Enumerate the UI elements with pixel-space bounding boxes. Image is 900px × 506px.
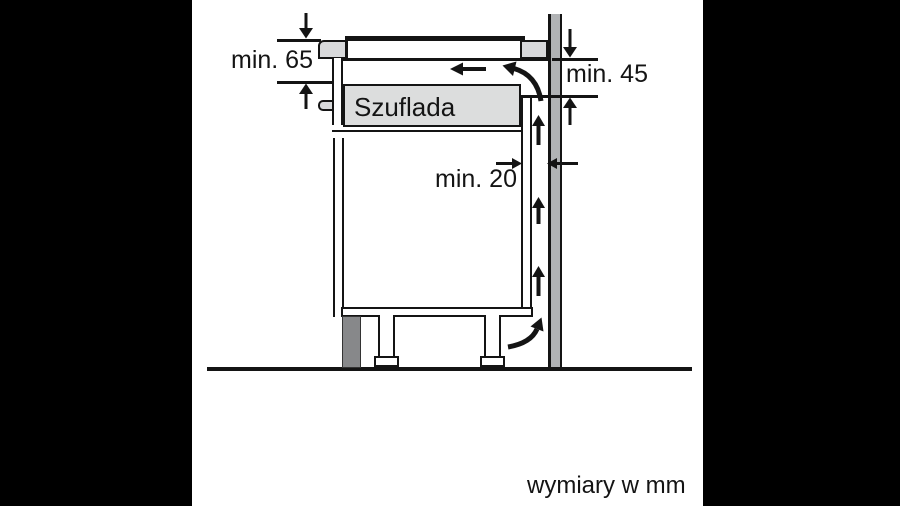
leg-stem <box>484 315 501 357</box>
worktop-right-section <box>520 40 548 59</box>
cabinet-back-panel <box>521 95 533 307</box>
foot-pad <box>377 366 396 370</box>
plinth-panel <box>342 316 361 368</box>
hob-housing-side-wall <box>332 58 343 125</box>
units-note: wymiary w mm <box>527 474 686 498</box>
hob-glass-surface <box>345 36 525 41</box>
leg-stem <box>378 315 395 357</box>
cabinet-left-wall <box>333 138 344 317</box>
dim-line-min45-bottom <box>521 95 598 98</box>
floor-line <box>207 367 692 371</box>
dim-line-min65-bottom <box>277 81 332 84</box>
hob-body-left-edge <box>345 41 348 58</box>
dim-label-min65: min. 65 <box>231 48 313 73</box>
mounting-bracket <box>318 100 334 111</box>
cabinet-bottom-panel <box>341 307 533 317</box>
drawer-label: Szuflada <box>354 94 455 120</box>
dim-label-min20: min. 20 <box>435 167 517 192</box>
drawer-box: Szuflada <box>343 84 521 127</box>
diagram-stage: Szuflada min. 65 min. 45 min. 20 wymiary… <box>0 0 900 506</box>
dim-line-min65-top <box>277 39 321 42</box>
dim-label-min45: min. 45 <box>566 62 648 87</box>
worktop-underside-line <box>333 58 548 61</box>
foot-pad <box>483 366 502 370</box>
drawer-bottom-rail <box>332 130 521 133</box>
kitchen-wall <box>548 14 562 368</box>
worktop-left-section <box>318 40 347 59</box>
